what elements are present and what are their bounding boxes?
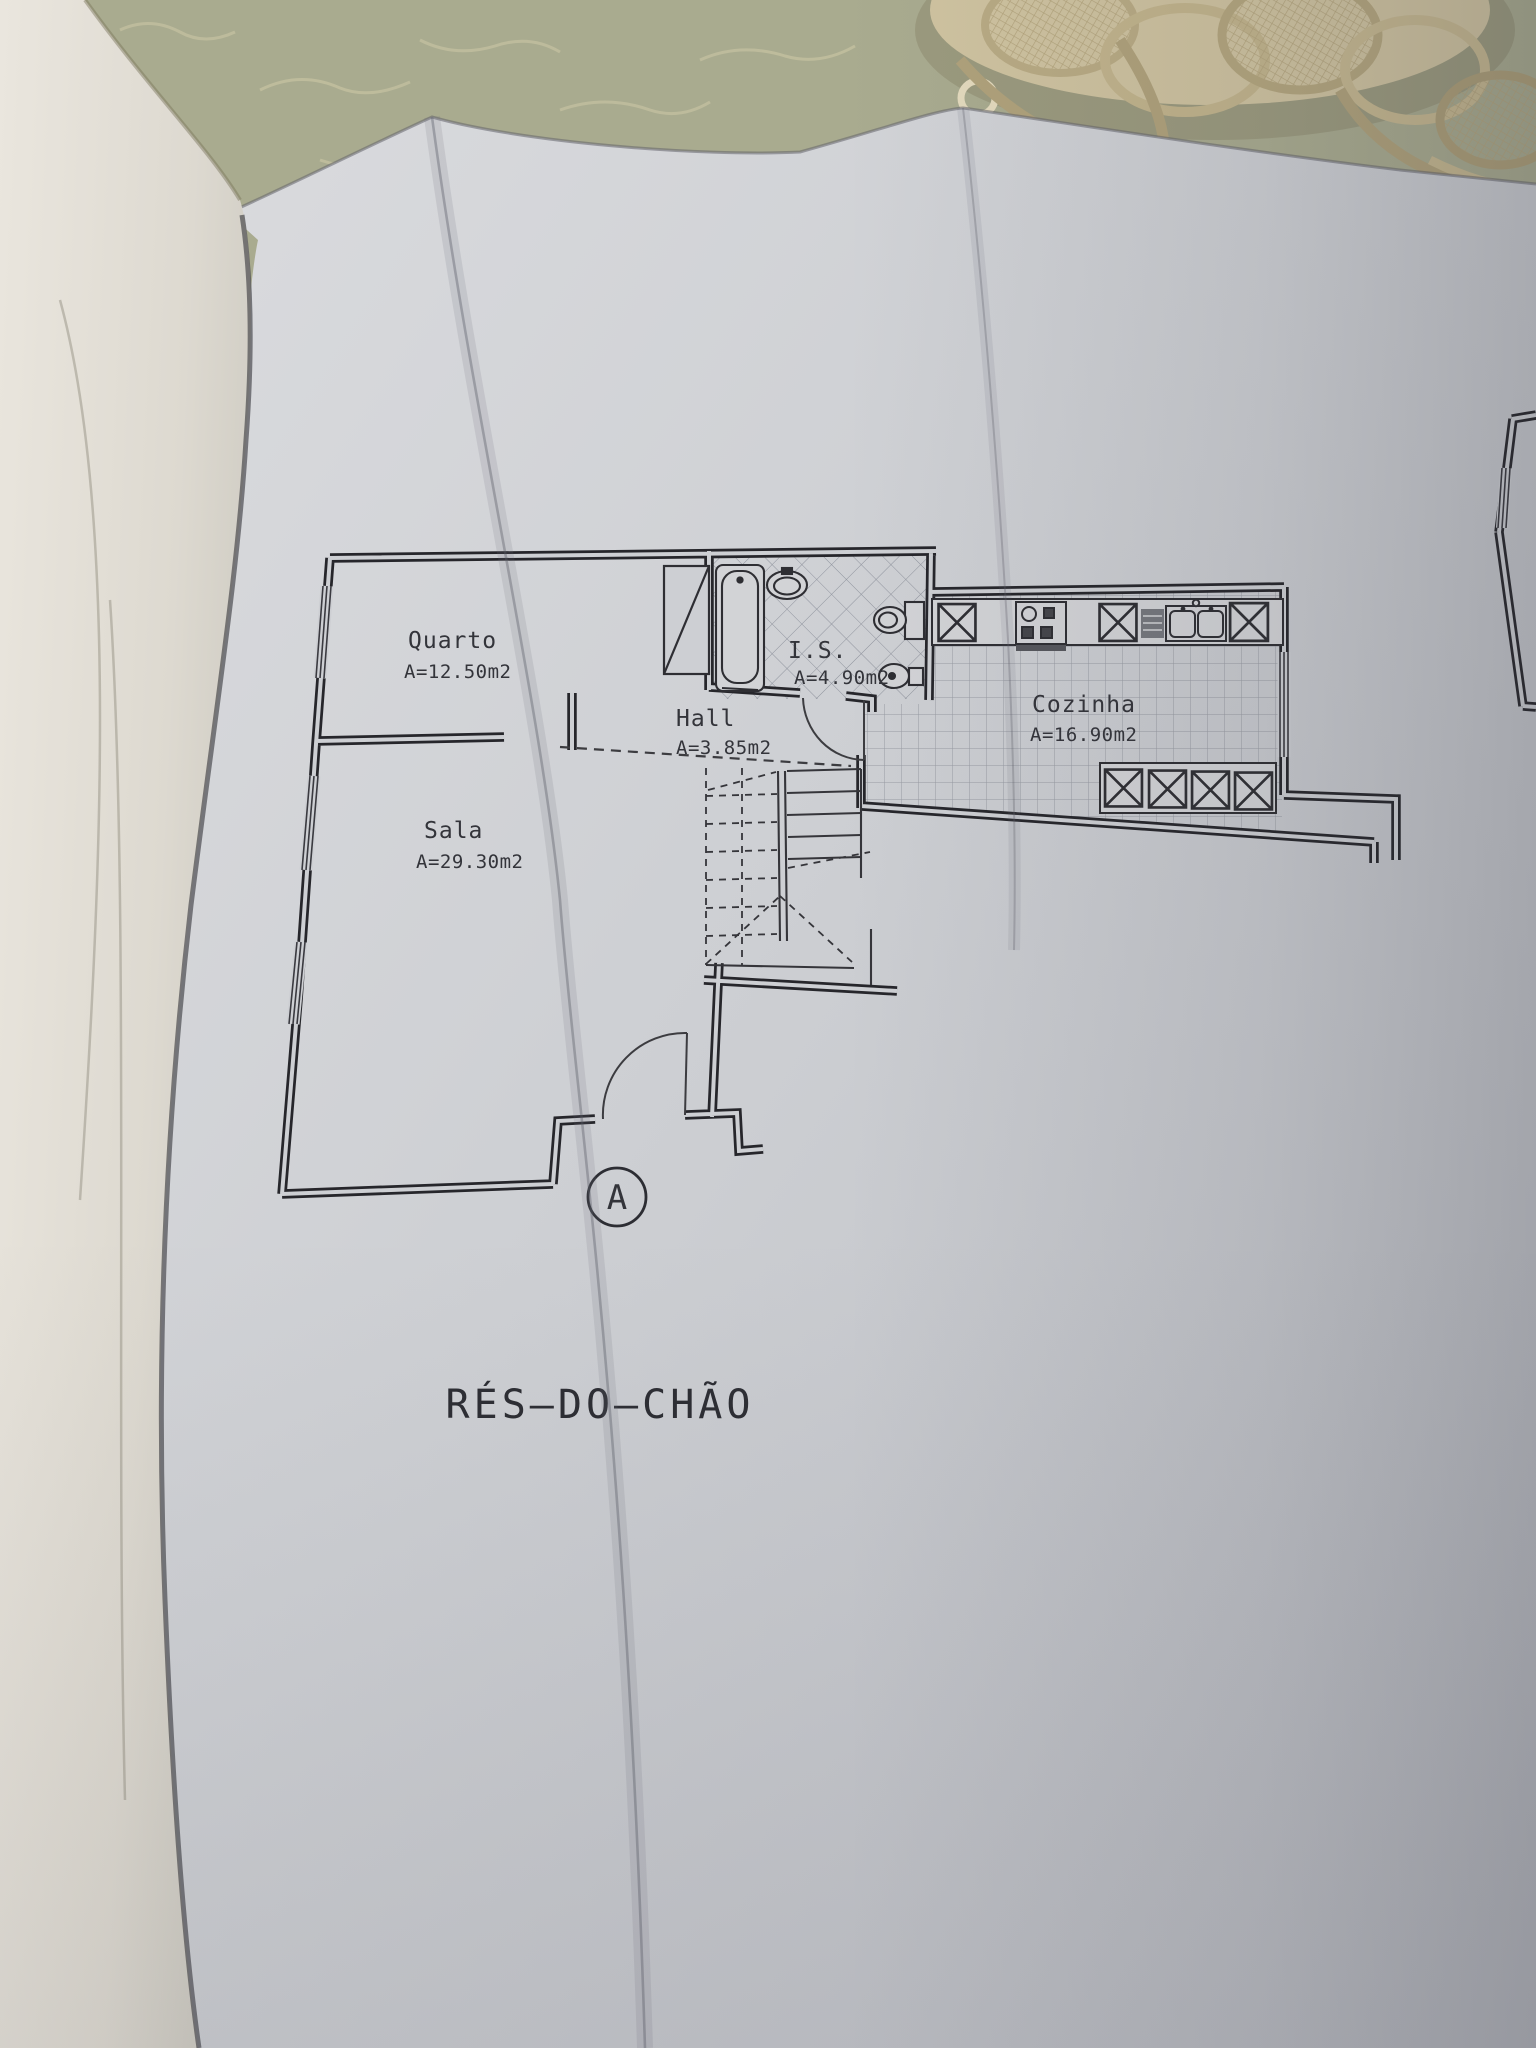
bottom-shading [0, 0, 1536, 2048]
scene: A Quarto A=12.50m2 Sala A=29.30m2 Hall A… [0, 0, 1536, 2048]
photo-of-floor-plan-page: A Quarto A=12.50m2 Sala A=29.30m2 Hall A… [0, 0, 1536, 2048]
